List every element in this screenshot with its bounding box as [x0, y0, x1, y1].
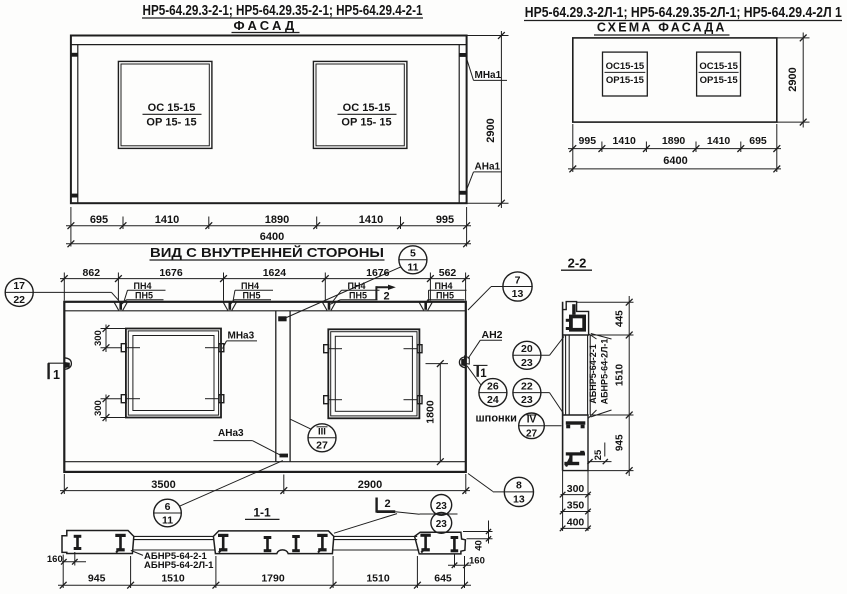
svg-text:23: 23 — [521, 357, 533, 369]
svg-text:1: 1 — [480, 368, 487, 380]
svg-text:6400: 6400 — [260, 231, 284, 243]
svg-text:НР5-64.29.3-2Л-1; НР5-64.29.35: НР5-64.29.3-2Л-1; НР5-64.29.35-2Л-1; НР5… — [525, 5, 842, 21]
svg-text:ОР15-15: ОР15-15 — [700, 75, 739, 86]
svg-text:23: 23 — [521, 394, 533, 406]
svg-text:862: 862 — [83, 267, 101, 279]
svg-text:1676: 1676 — [159, 267, 183, 279]
svg-text:IV: IV — [527, 415, 537, 426]
svg-text:ОС 15-15: ОС 15-15 — [148, 102, 196, 114]
svg-text:695: 695 — [749, 135, 767, 147]
svg-text:2900: 2900 — [787, 67, 799, 91]
svg-text:1510: 1510 — [161, 572, 185, 584]
svg-text:ОР15-15: ОР15-15 — [606, 75, 645, 86]
svg-text:ОС15-15: ОС15-15 — [699, 61, 738, 72]
svg-text:1410: 1410 — [613, 135, 637, 147]
svg-text:2900: 2900 — [358, 479, 382, 491]
svg-text:445: 445 — [614, 310, 625, 327]
svg-text:ПН5: ПН5 — [243, 290, 261, 300]
svg-text:ПН4: ПН4 — [348, 281, 366, 291]
svg-text:1510: 1510 — [614, 363, 625, 386]
svg-text:3500: 3500 — [151, 479, 175, 491]
svg-text:11: 11 — [407, 261, 418, 273]
svg-text:СХЕМА ФАСАДА: СХЕМА ФАСАДА — [597, 20, 727, 34]
svg-text:ПН4: ПН4 — [241, 281, 259, 291]
svg-text:995: 995 — [436, 214, 454, 226]
svg-text:995: 995 — [579, 135, 597, 147]
svg-text:1624: 1624 — [263, 267, 287, 279]
svg-text:350: 350 — [567, 500, 585, 512]
svg-text:7: 7 — [515, 274, 521, 286]
svg-text:5: 5 — [410, 248, 416, 260]
svg-text:1510: 1510 — [366, 572, 390, 584]
svg-text:III: III — [318, 426, 326, 437]
svg-text:645: 645 — [434, 572, 452, 584]
svg-text:ВИД С ВНУТРЕННЕЙ СТОРОНЫ: ВИД С ВНУТРЕННЕЙ СТОРОНЫ — [150, 245, 384, 260]
svg-text:ОС 15-15: ОС 15-15 — [343, 102, 391, 114]
svg-text:22: 22 — [521, 380, 533, 392]
svg-text:ОС15-15: ОС15-15 — [606, 61, 645, 72]
svg-text:20: 20 — [521, 343, 533, 355]
svg-text:1790: 1790 — [261, 572, 285, 584]
svg-text:160: 160 — [469, 556, 485, 567]
svg-text:300: 300 — [93, 330, 104, 346]
svg-text:562: 562 — [439, 267, 457, 279]
svg-text:1410: 1410 — [707, 135, 731, 147]
svg-text:АНа1: АНа1 — [475, 162, 501, 173]
svg-text:1676: 1676 — [366, 267, 390, 279]
svg-text:1890: 1890 — [265, 214, 289, 226]
svg-text:300: 300 — [567, 483, 585, 495]
svg-text:1410: 1410 — [155, 214, 179, 226]
svg-text:945: 945 — [614, 434, 625, 451]
svg-text:1410: 1410 — [359, 214, 383, 226]
svg-text:2: 2 — [384, 498, 390, 510]
svg-text:8: 8 — [516, 480, 522, 492]
svg-text:НР5-64.29.3-2-1; НР5-64.29.35-: НР5-64.29.3-2-1; НР5-64.29.35-2-1; НР5-6… — [143, 3, 423, 19]
svg-text:2: 2 — [383, 290, 389, 302]
svg-text:160: 160 — [47, 554, 63, 565]
svg-text:1800: 1800 — [425, 400, 437, 424]
svg-text:26: 26 — [487, 380, 499, 392]
svg-text:11: 11 — [162, 515, 173, 527]
svg-text:1: 1 — [53, 368, 60, 382]
svg-text:2-2: 2-2 — [568, 255, 587, 270]
svg-text:ПН5: ПН5 — [349, 290, 367, 300]
svg-text:ПН5: ПН5 — [436, 290, 454, 300]
svg-text:2900: 2900 — [485, 118, 497, 142]
svg-text:АБНР5-64-2Л-1: АБНР5-64-2Л-1 — [144, 560, 214, 571]
svg-text:27: 27 — [316, 439, 328, 451]
svg-text:ФАСАД: ФАСАД — [233, 18, 297, 33]
svg-text:АНа3: АНа3 — [218, 428, 244, 439]
svg-text:27: 27 — [526, 428, 538, 439]
svg-text:6400: 6400 — [663, 155, 687, 167]
svg-text:400: 400 — [567, 517, 585, 529]
svg-text:23: 23 — [436, 501, 448, 512]
svg-text:6: 6 — [165, 501, 171, 513]
svg-text:13: 13 — [512, 288, 524, 300]
svg-text:17: 17 — [13, 280, 25, 292]
svg-text:945: 945 — [88, 572, 106, 584]
svg-text:300: 300 — [93, 400, 104, 416]
svg-text:МНа3: МНа3 — [228, 331, 255, 342]
svg-text:1890: 1890 — [662, 135, 686, 147]
svg-text:25: 25 — [593, 449, 604, 460]
svg-text:1-1: 1-1 — [253, 506, 271, 520]
svg-text:МНа1: МНа1 — [475, 70, 502, 81]
svg-text:шпонки: шпонки — [476, 413, 517, 425]
svg-text:ОР 15- 15: ОР 15- 15 — [146, 116, 196, 128]
svg-text:13: 13 — [513, 494, 525, 506]
svg-text:695: 695 — [90, 214, 108, 226]
svg-text:ОР 15- 15: ОР 15- 15 — [341, 116, 391, 128]
svg-text:24: 24 — [487, 394, 499, 406]
svg-text:ПН4: ПН4 — [435, 281, 453, 291]
svg-text:23: 23 — [436, 519, 448, 530]
svg-text:ПН4: ПН4 — [134, 281, 152, 291]
svg-text:22: 22 — [13, 294, 25, 306]
svg-text:АБНР5-64-2Л-1: АБНР5-64-2Л-1 — [600, 339, 610, 405]
svg-text:АБНР5-64-2-1: АБНР5-64-2-1 — [588, 344, 598, 404]
svg-text:АН2: АН2 — [482, 329, 503, 341]
svg-text:40: 40 — [473, 540, 484, 551]
svg-text:ПН5: ПН5 — [135, 290, 153, 300]
